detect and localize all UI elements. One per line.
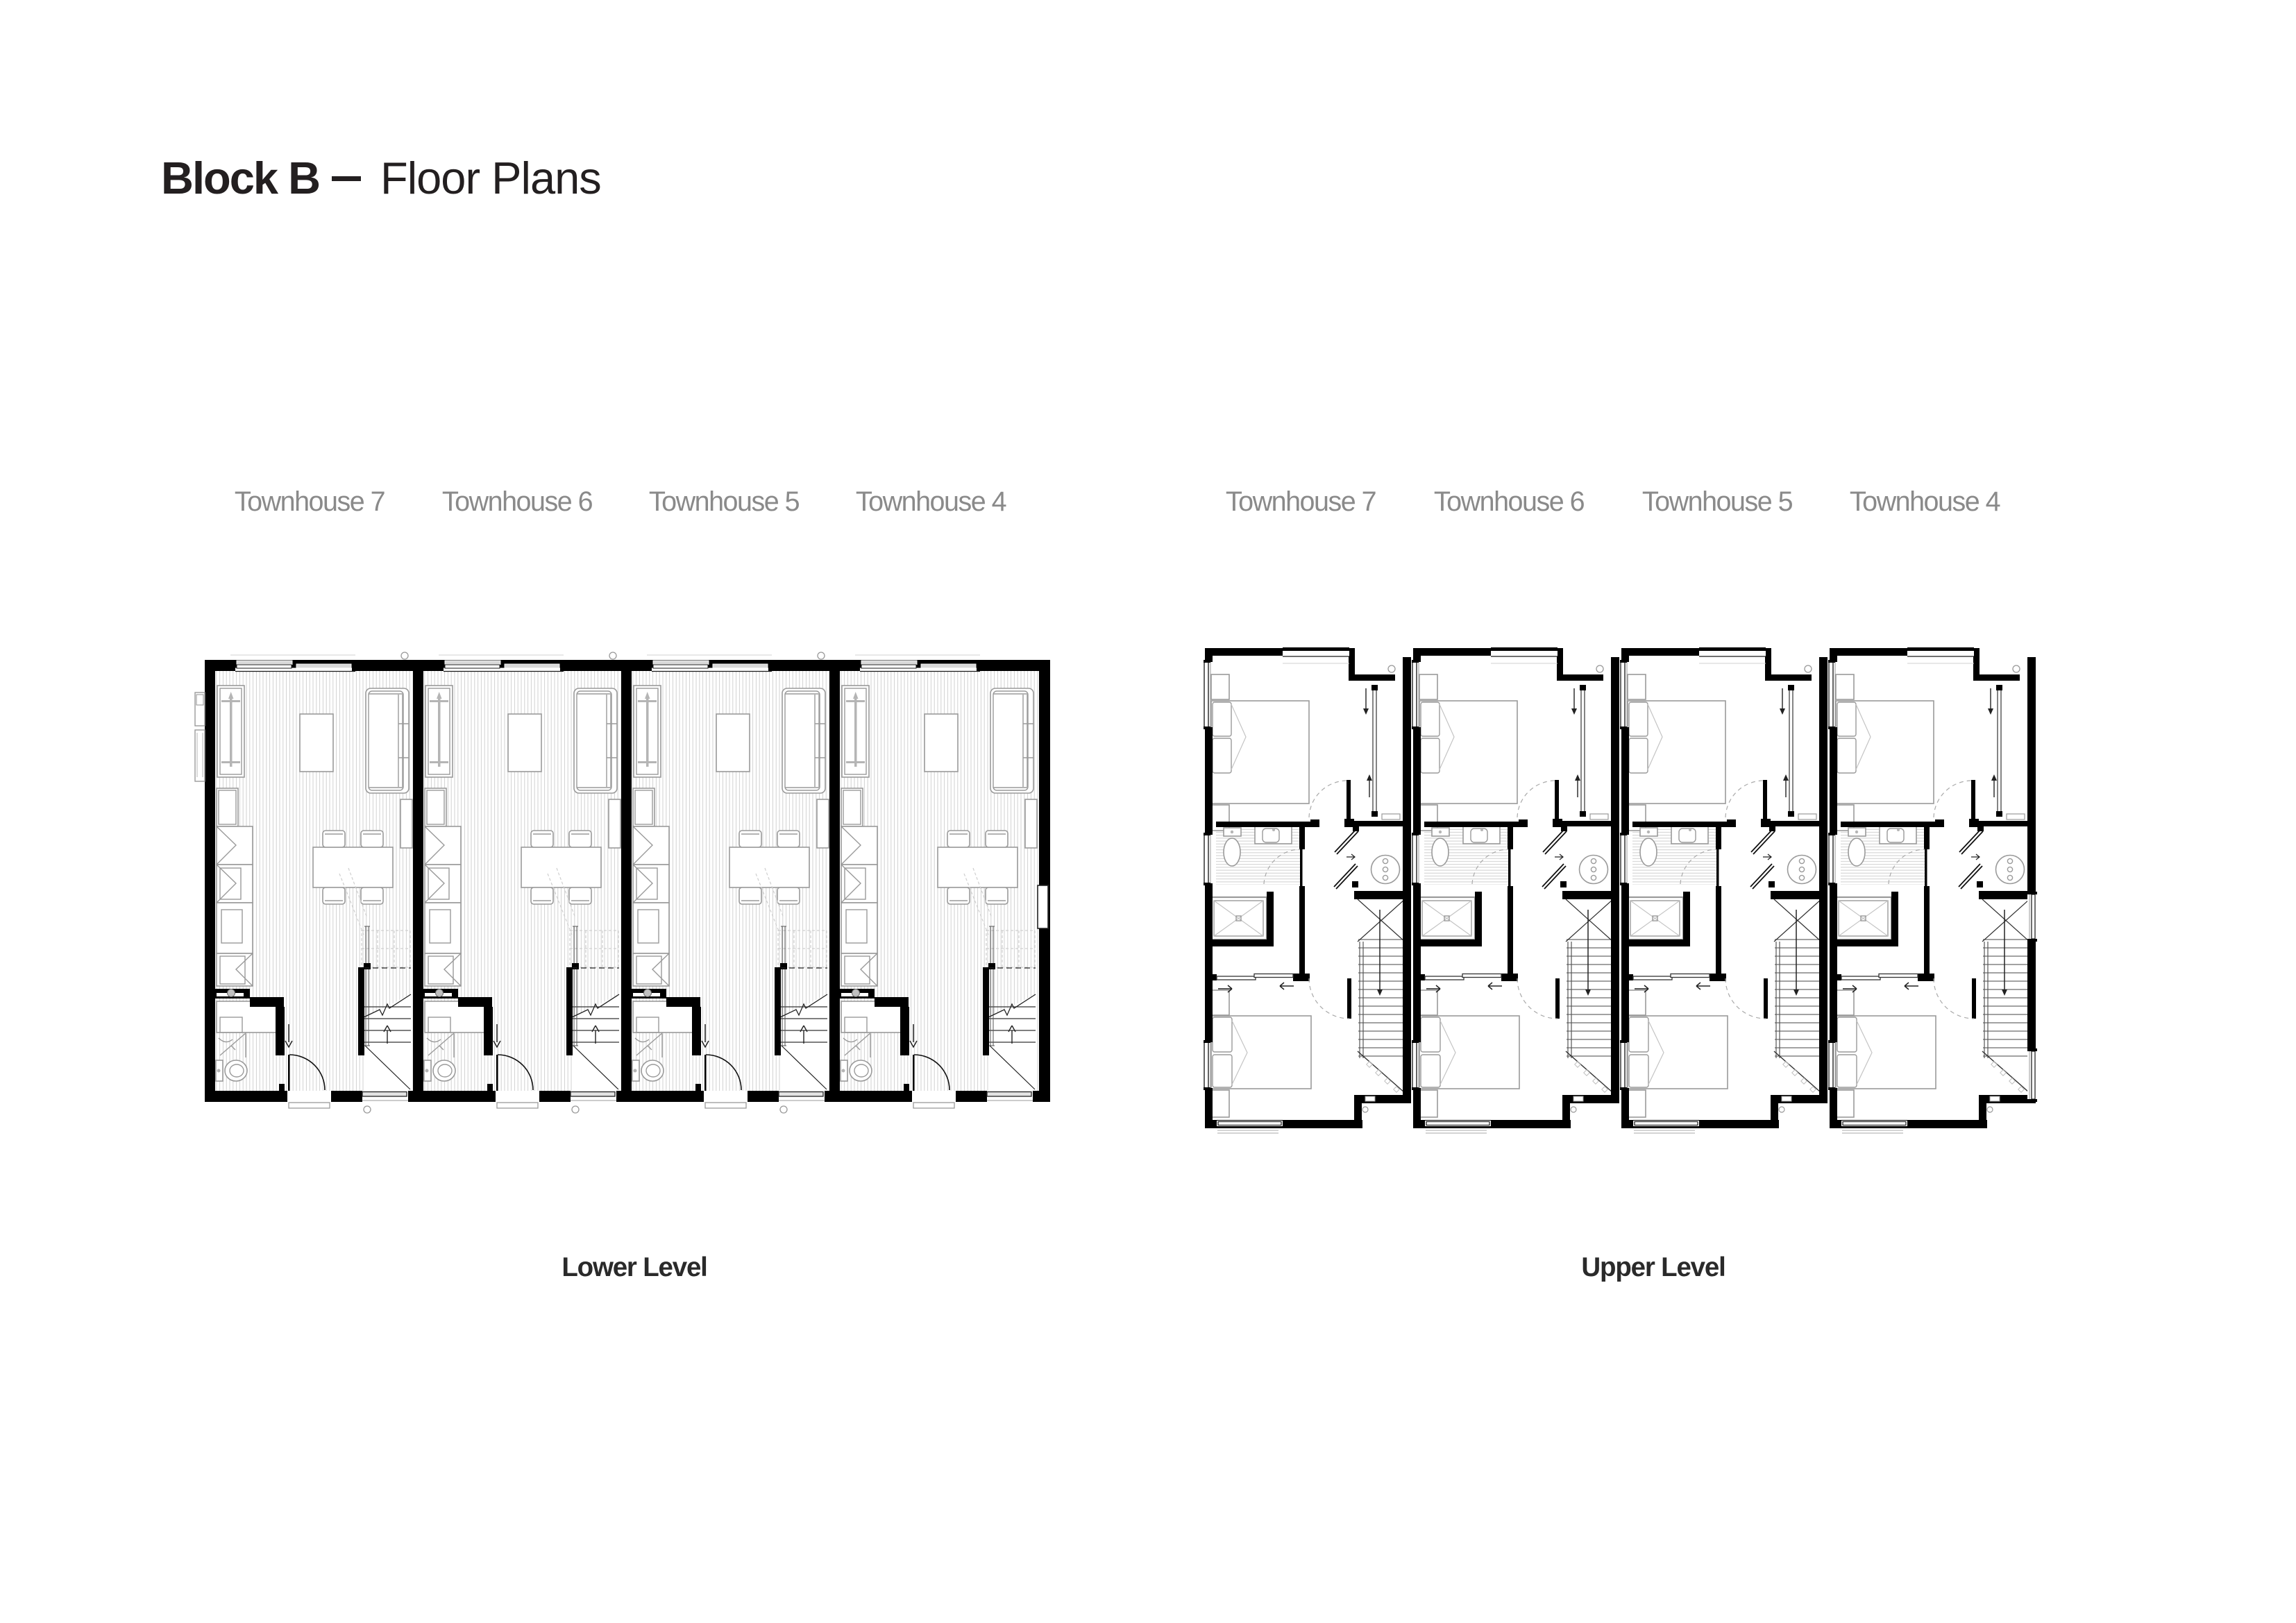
- svg-text:Townhouse 5: Townhouse 5: [649, 486, 800, 517]
- svg-text:Townhouse 7: Townhouse 7: [1226, 486, 1376, 517]
- svg-text:Townhouse 4: Townhouse 4: [856, 486, 1006, 517]
- svg-text:Townhouse 5: Townhouse 5: [1642, 486, 1793, 517]
- svg-text:Upper Level: Upper Level: [1581, 1252, 1725, 1282]
- svg-text:Townhouse 6: Townhouse 6: [1434, 486, 1585, 517]
- svg-text:Townhouse 4: Townhouse 4: [1850, 486, 2000, 517]
- svg-text:Townhouse 7: Townhouse 7: [235, 486, 385, 517]
- svg-text:Block B: Block B: [161, 153, 319, 203]
- svg-text:Lower Level: Lower Level: [562, 1252, 707, 1282]
- svg-text:Townhouse 6: Townhouse 6: [442, 486, 593, 517]
- svg-text:Floor Plans: Floor Plans: [380, 153, 601, 203]
